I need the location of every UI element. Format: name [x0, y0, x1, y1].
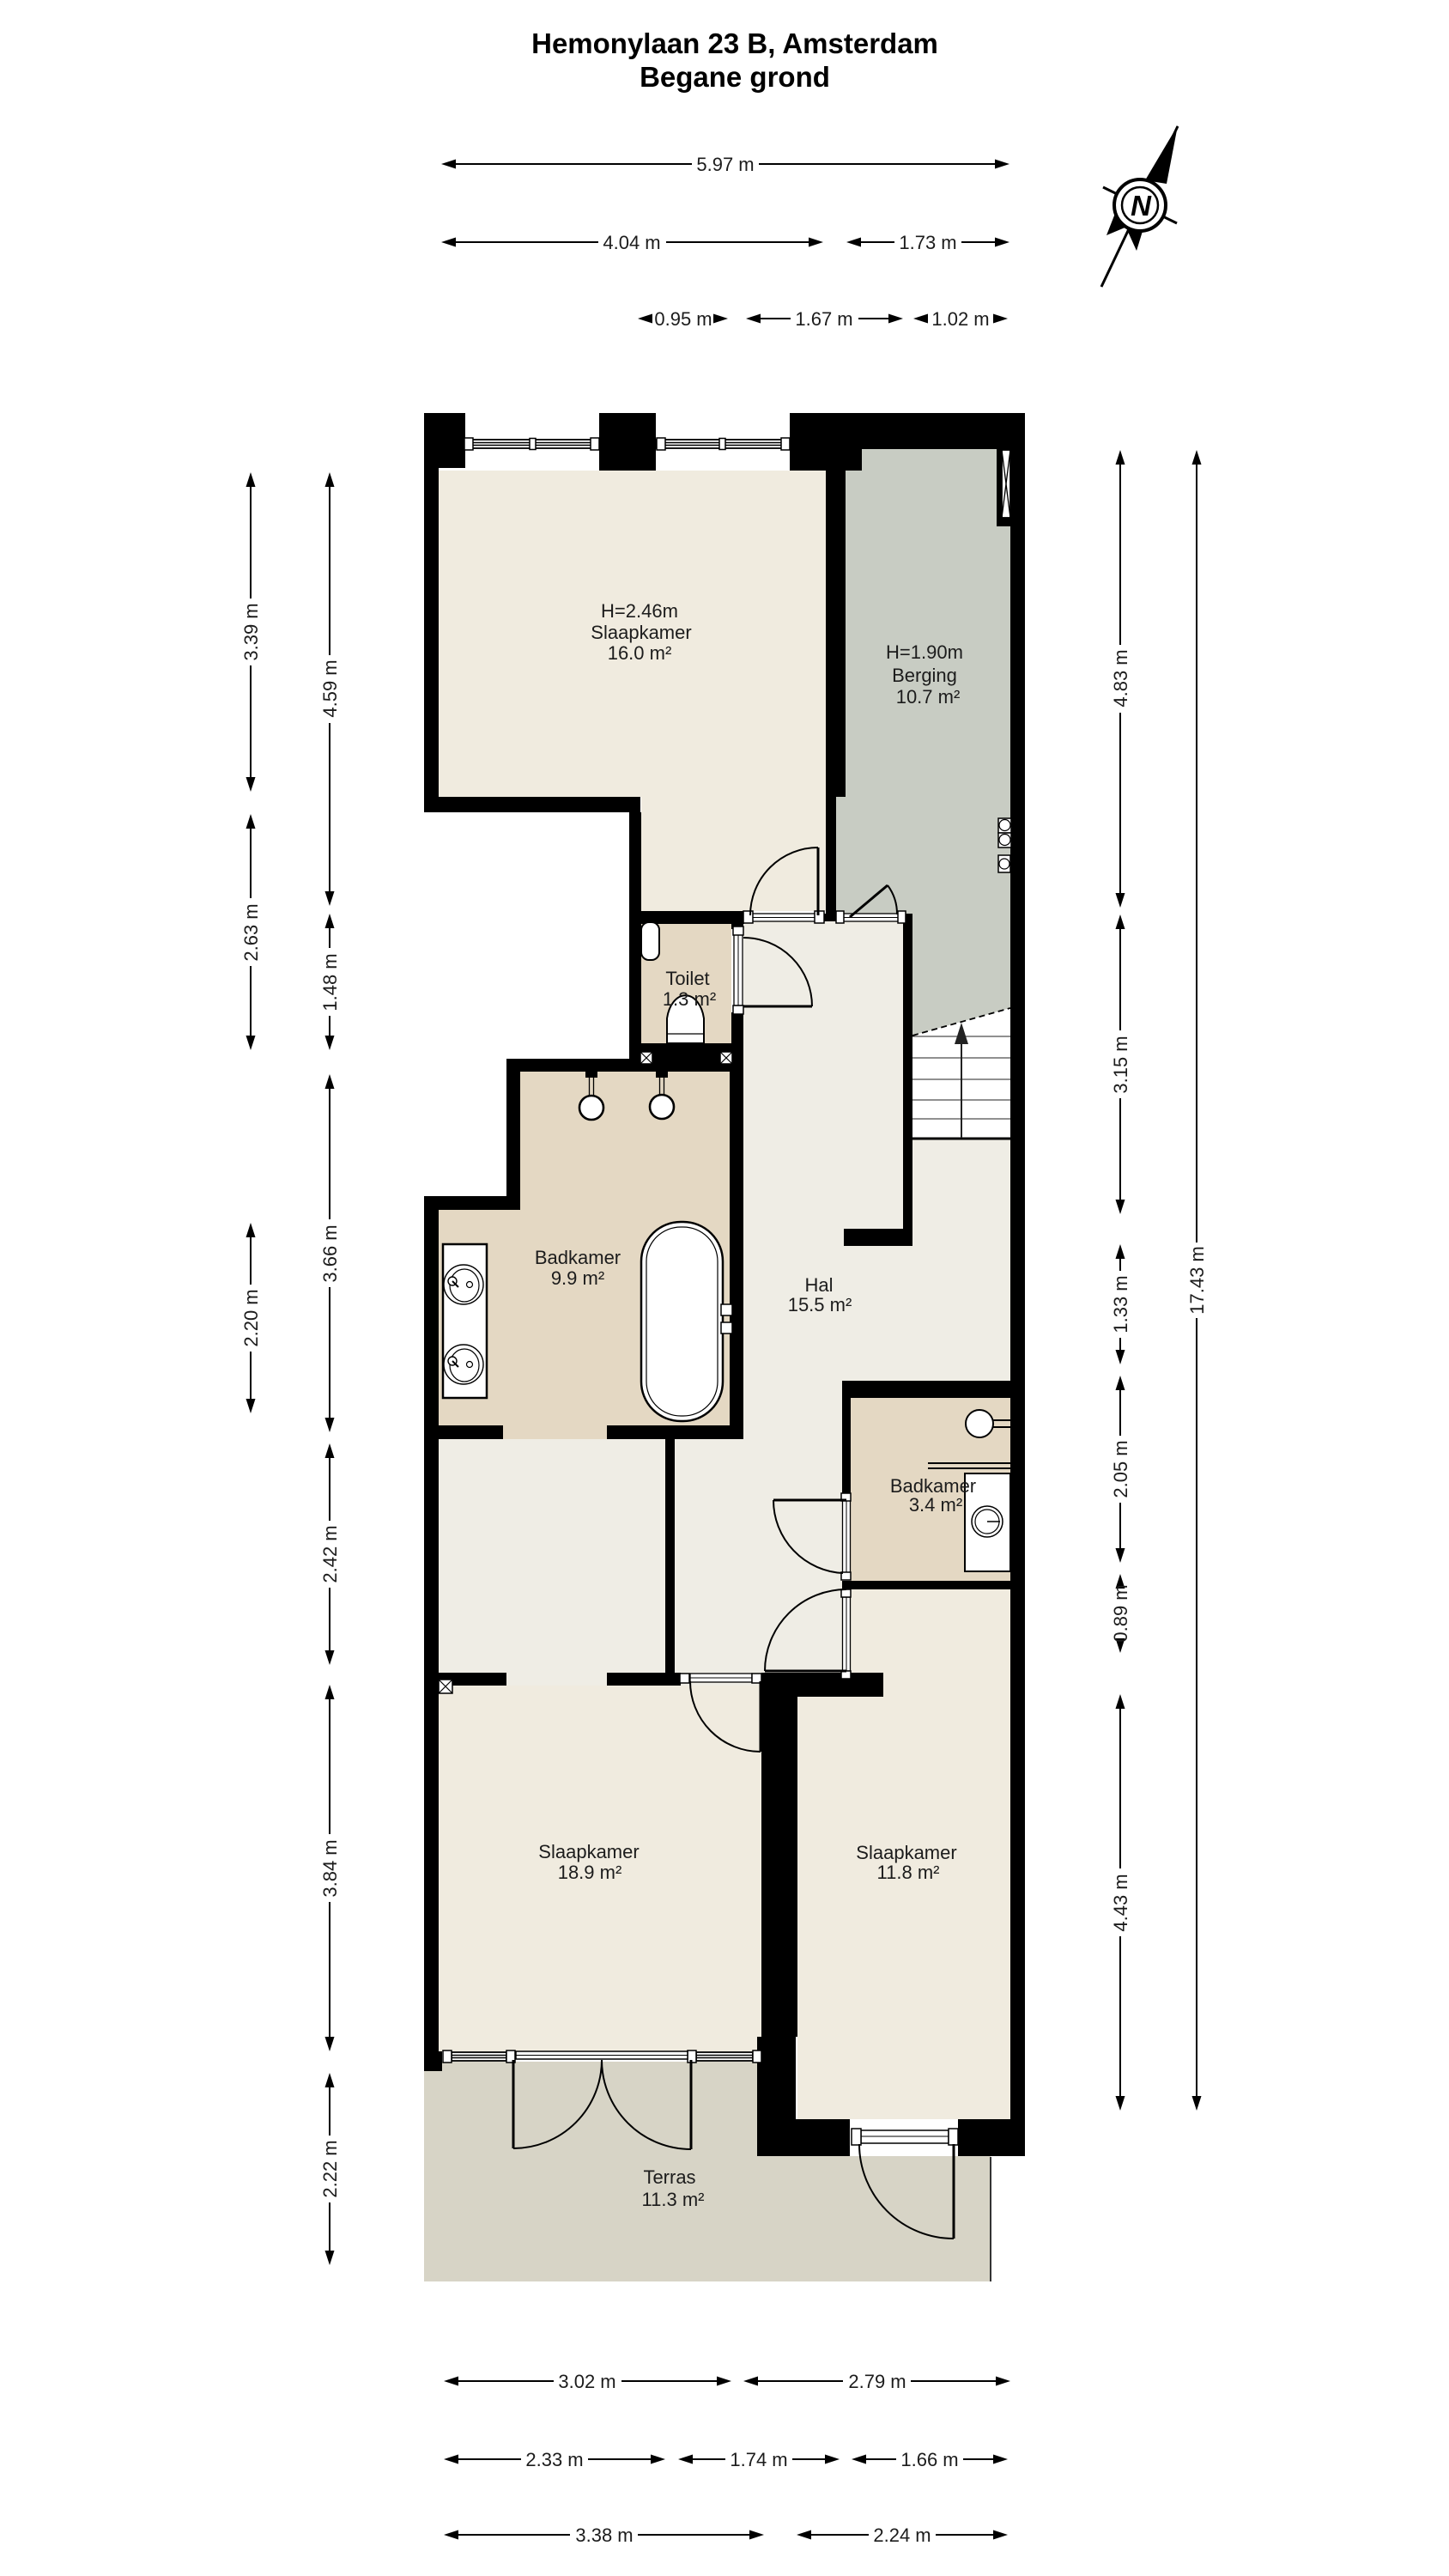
svg-text:11.3 m²: 11.3 m²	[642, 2189, 705, 2210]
svg-text:N: N	[1131, 190, 1152, 222]
svg-text:Slaapkamer: Slaapkamer	[591, 622, 691, 643]
svg-text:4.59 m: 4.59 m	[319, 659, 341, 717]
svg-text:4.83 m: 4.83 m	[1110, 649, 1131, 707]
svg-text:Hal: Hal	[804, 1274, 833, 1296]
svg-text:0.95 m: 0.95 m	[654, 308, 712, 330]
svg-text:Berging: Berging	[892, 665, 957, 686]
svg-text:Slaapkamer: Slaapkamer	[856, 1842, 956, 1863]
svg-text:Toilet: Toilet	[665, 968, 709, 989]
svg-text:17.43 m: 17.43 m	[1186, 1246, 1208, 1315]
svg-text:Badkamer: Badkamer	[535, 1247, 621, 1268]
svg-text:2.24 m: 2.24 m	[873, 2524, 931, 2546]
svg-text:10.7 m²: 10.7 m²	[896, 686, 961, 708]
svg-text:3.84 m: 3.84 m	[319, 1839, 341, 1897]
svg-text:Begane grond: Begane grond	[640, 61, 830, 93]
svg-text:2.20 m: 2.20 m	[240, 1289, 262, 1346]
svg-text:2.79 m: 2.79 m	[848, 2371, 906, 2392]
svg-text:H=2.46m: H=2.46m	[601, 600, 678, 622]
svg-text:18.9 m²: 18.9 m²	[558, 1862, 622, 1883]
svg-text:2.22 m: 2.22 m	[319, 2140, 341, 2197]
svg-text:1.48 m: 1.48 m	[319, 953, 341, 1011]
svg-text:9.9 m²: 9.9 m²	[551, 1267, 604, 1289]
svg-text:0.89 m: 0.89 m	[1110, 1584, 1131, 1642]
svg-text:4.43 m: 4.43 m	[1110, 1874, 1131, 1931]
svg-text:Slaapkamer: Slaapkamer	[538, 1841, 639, 1862]
svg-text:1.73 m: 1.73 m	[899, 232, 956, 253]
svg-text:16.0 m²: 16.0 m²	[608, 642, 672, 664]
svg-text:1.74 m: 1.74 m	[730, 2449, 787, 2470]
svg-text:1.02 m: 1.02 m	[931, 308, 989, 330]
svg-text:2.42 m: 2.42 m	[319, 1525, 341, 1583]
svg-text:3.66 m: 3.66 m	[319, 1224, 341, 1282]
svg-text:3.4 m²: 3.4 m²	[909, 1494, 962, 1516]
svg-text:2.05 m: 2.05 m	[1110, 1440, 1131, 1498]
svg-text:2.33 m: 2.33 m	[525, 2449, 583, 2470]
svg-text:3.02 m: 3.02 m	[558, 2371, 615, 2392]
svg-text:5.97 m: 5.97 m	[696, 154, 754, 175]
svg-text:4.04 m: 4.04 m	[603, 232, 660, 253]
svg-text:1.33 m: 1.33 m	[1110, 1275, 1131, 1333]
svg-text:1.3 m²: 1.3 m²	[663, 988, 716, 1010]
svg-text:Hemonylaan 23 B, Amsterdam: Hemonylaan 23 B, Amsterdam	[531, 27, 938, 59]
svg-text:3.15 m: 3.15 m	[1110, 1036, 1131, 1093]
svg-text:3.39 m: 3.39 m	[240, 603, 262, 660]
svg-text:2.63 m: 2.63 m	[240, 903, 262, 961]
svg-text:Terras: Terras	[643, 2166, 695, 2188]
svg-text:15.5 m²: 15.5 m²	[788, 1294, 852, 1315]
svg-text:H=1.90m: H=1.90m	[886, 641, 963, 663]
svg-text:1.66 m: 1.66 m	[900, 2449, 958, 2470]
svg-text:3.38 m: 3.38 m	[575, 2524, 633, 2546]
svg-text:11.8 m²: 11.8 m²	[877, 1862, 940, 1883]
svg-text:1.67 m: 1.67 m	[795, 308, 852, 330]
